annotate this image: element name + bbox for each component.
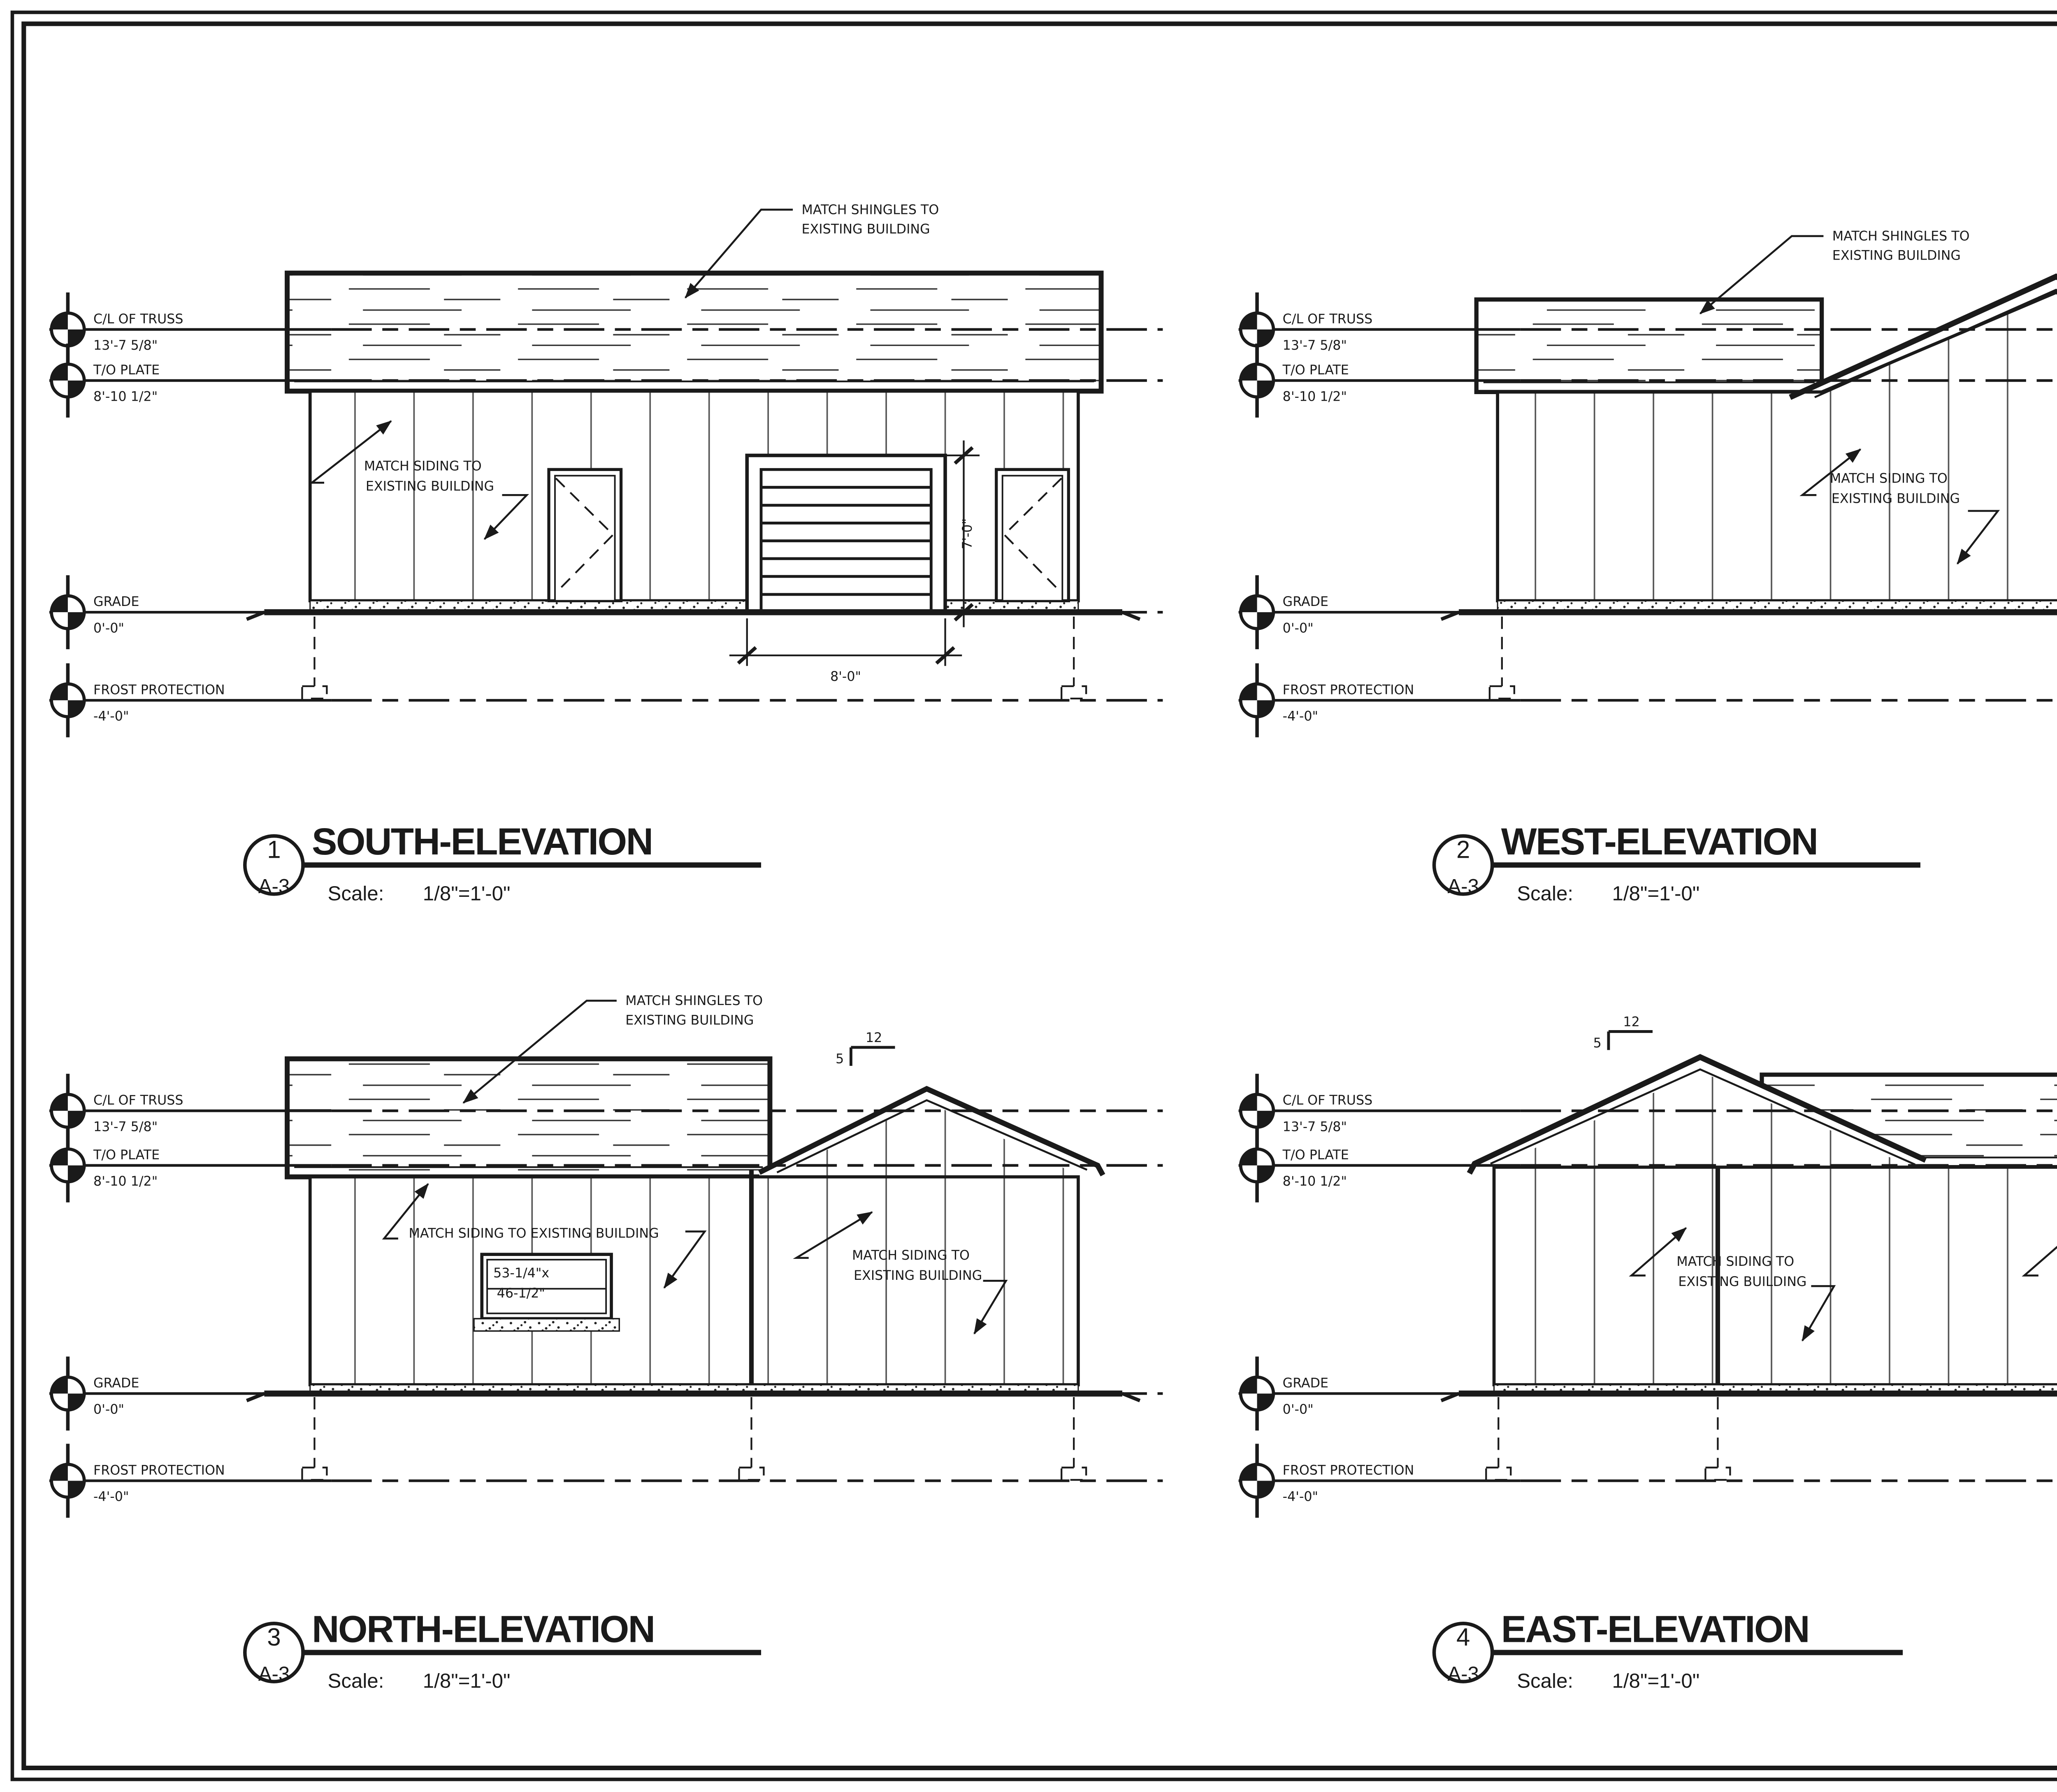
west-roof-band <box>1477 299 1822 392</box>
west-match-siding-line1: MATCH SIDING TO <box>1830 471 1948 486</box>
svg-text:8'-10 1/2": 8'-10 1/2" <box>1283 1174 1347 1189</box>
north-match-siding-single: MATCH SIDING TO EXISTING BUILDING <box>409 1226 659 1241</box>
south-garage-width-dim <box>729 618 962 666</box>
svg-text:GRADE: GRADE <box>1283 1376 1328 1390</box>
svg-text:NORTH-ELEVATION: NORTH-ELEVATION <box>312 1608 655 1650</box>
svg-text:GRADE: GRADE <box>1283 594 1328 609</box>
svg-text:FROST PROTECTION: FROST PROTECTION <box>93 682 225 697</box>
north-gable-match-siding-line2: EXISTING BUILDING <box>854 1268 982 1283</box>
svg-text:8'-10 1/2": 8'-10 1/2" <box>1283 389 1347 404</box>
east-match-siding1-line1: MATCH SIDING TO <box>1676 1254 1794 1269</box>
svg-text:FROST PROTECTION: FROST PROTECTION <box>93 1463 225 1478</box>
svg-text:2: 2 <box>1456 836 1470 864</box>
svg-text:-4'-0": -4'-0" <box>93 1490 129 1504</box>
north-view-title: 3 A-3 NORTH-ELEVATION Scale: 1/8"=1'-0" <box>245 1608 761 1692</box>
svg-text:Scale:: Scale: <box>1517 1670 1573 1692</box>
svg-text:8'-10 1/2": 8'-10 1/2" <box>93 1174 158 1189</box>
svg-text:13'-7 5/8": 13'-7 5/8" <box>1283 1119 1347 1134</box>
south-elevation-view: 7'-0" 8'-0" MATCH SHINGLES TO EXISTING B… <box>247 202 1140 699</box>
north-gable-match-siding-line1: MATCH SIDING TO <box>852 1248 970 1263</box>
svg-text:0'-0": 0'-0" <box>93 1402 124 1417</box>
svg-text:A-3: A-3 <box>258 875 290 898</box>
svg-text:SOUTH-ELEVATION: SOUTH-ELEVATION <box>312 820 652 863</box>
north-window-sill <box>474 1318 619 1331</box>
svg-text:A-3: A-3 <box>258 1663 290 1685</box>
south-match-shingles-line2: EXISTING BUILDING <box>802 222 930 237</box>
south-right-door <box>996 469 1069 601</box>
south-match-siding-line1: MATCH SIDING TO <box>364 459 482 474</box>
svg-text:A-3: A-3 <box>1447 1663 1479 1685</box>
svg-text:-4'-0": -4'-0" <box>1283 709 1318 724</box>
west-match-siding-line2: EXISTING BUILDING <box>1832 492 1960 506</box>
south-match-shingles-line1: MATCH SHINGLES TO <box>802 202 939 217</box>
svg-text:4: 4 <box>1456 1623 1470 1651</box>
svg-text:T/O PLATE: T/O PLATE <box>1282 363 1349 378</box>
svg-text:EAST-ELEVATION: EAST-ELEVATION <box>1501 1608 1809 1650</box>
drawing-sheet: 7'-0" 8'-0" MATCH SHINGLES TO EXISTING B… <box>0 0 2057 1792</box>
north-roof-band <box>287 1059 770 1177</box>
south-view-title: 1 A-3 SOUTH-ELEVATION Scale: 1/8"=1'-0" <box>245 820 761 905</box>
east-match-siding1-line2: EXISTING BUILDING <box>1678 1274 1806 1289</box>
svg-text:1/8"=1'-0": 1/8"=1'-0" <box>1612 882 1699 905</box>
north-footings <box>302 1397 1086 1480</box>
svg-text:1/8"=1'-0": 1/8"=1'-0" <box>1612 1670 1699 1692</box>
svg-text:3: 3 <box>267 1623 281 1651</box>
svg-text:Scale:: Scale: <box>328 1670 384 1692</box>
svg-text:T/O PLATE: T/O PLATE <box>1282 1148 1349 1163</box>
svg-text:A-3: A-3 <box>1447 875 1479 898</box>
svg-text:1/8"=1'-0": 1/8"=1'-0" <box>423 1670 511 1692</box>
svg-text:-4'-0": -4'-0" <box>93 709 129 724</box>
svg-text:1/8"=1'-0": 1/8"=1'-0" <box>423 882 511 905</box>
south-left-door <box>549 469 621 601</box>
north-match-shingles-line2: EXISTING BUILDING <box>625 1013 754 1028</box>
east-pitch-marker <box>1609 1031 1653 1050</box>
svg-text:GRADE: GRADE <box>93 1376 139 1390</box>
east-pitch-rise: 5 <box>1593 1036 1602 1051</box>
svg-text:C/L OF TRUSS: C/L OF TRUSS <box>93 312 183 327</box>
south-match-siding-line2: EXISTING BUILDING <box>366 479 494 494</box>
svg-text:13'-7 5/8": 13'-7 5/8" <box>1283 338 1347 353</box>
east-elevation-view: 12 5 MATCH SHINGLES TO EXISTING BUILDING… <box>1441 988 2057 1480</box>
south-footings <box>302 617 1086 699</box>
west-footings <box>1490 617 2057 699</box>
svg-text:FROST PROTECTION: FROST PROTECTION <box>1283 1463 1414 1478</box>
west-match-shingles-line2: EXISTING BUILDING <box>1832 248 1961 263</box>
south-garage-door <box>747 455 945 612</box>
elevations-canvas: 7'-0" 8'-0" MATCH SHINGLES TO EXISTING B… <box>0 0 2057 1792</box>
svg-text:13'-7 5/8": 13'-7 5/8" <box>93 338 158 353</box>
east-view-title: 4 A-3 EAST-ELEVATION Scale: 1/8"=1'-0" <box>1434 1608 1903 1692</box>
svg-text:T/O PLATE: T/O PLATE <box>93 363 160 378</box>
east-footings <box>1486 1397 2057 1480</box>
svg-text:8'-10 1/2": 8'-10 1/2" <box>93 389 158 404</box>
svg-text:FROST PROTECTION: FROST PROTECTION <box>1283 682 1414 697</box>
west-view-title: 2 A-3 WEST-ELEVATION Scale: 1/8"=1'-0" <box>1434 820 1920 905</box>
west-elevation-view: 12 5 MATCH SHINGLES TO EXISTING BUILDING… <box>1441 229 2057 699</box>
garage-height-dim-text: 7'-0" <box>960 518 975 549</box>
svg-text:0'-0": 0'-0" <box>1283 621 1314 636</box>
south-roof-band <box>287 273 1101 391</box>
svg-text:T/O PLATE: T/O PLATE <box>93 1148 160 1163</box>
svg-text:Scale:: Scale: <box>328 882 384 905</box>
garage-width-dim-text: 8'-0" <box>830 669 861 684</box>
north-pitch-marker <box>851 1047 895 1066</box>
north-elevation-view: 53-1/4"x 46-1/2" 12 5 MATCH SHINGLES TO … <box>247 993 1140 1480</box>
svg-text:C/L OF TRUSS: C/L OF TRUSS <box>1283 312 1373 327</box>
svg-text:-4'-0": -4'-0" <box>1283 1490 1318 1504</box>
svg-text:Scale:: Scale: <box>1517 882 1573 905</box>
north-match-shingles-line1: MATCH SHINGLES TO <box>625 993 763 1008</box>
svg-text:1: 1 <box>267 836 281 864</box>
svg-text:13'-7 5/8": 13'-7 5/8" <box>93 1119 158 1134</box>
west-match-shingles-line1: MATCH SHINGLES TO <box>1832 229 1970 244</box>
north-window-size-line1: 53-1/4"x <box>493 1266 549 1281</box>
svg-text:WEST-ELEVATION: WEST-ELEVATION <box>1501 820 1818 863</box>
north-pitch-run: 12 <box>866 1031 882 1045</box>
north-window-size-line2: 46-1/2" <box>497 1286 545 1301</box>
svg-text:GRADE: GRADE <box>93 594 139 609</box>
svg-text:0'-0": 0'-0" <box>1283 1402 1314 1417</box>
north-pitch-rise: 5 <box>836 1052 844 1066</box>
svg-text:C/L OF TRUSS: C/L OF TRUSS <box>1283 1093 1373 1108</box>
svg-text:C/L OF TRUSS: C/L OF TRUSS <box>93 1093 183 1108</box>
svg-text:0'-0": 0'-0" <box>93 621 124 636</box>
east-pitch-run: 12 <box>1623 1015 1639 1030</box>
